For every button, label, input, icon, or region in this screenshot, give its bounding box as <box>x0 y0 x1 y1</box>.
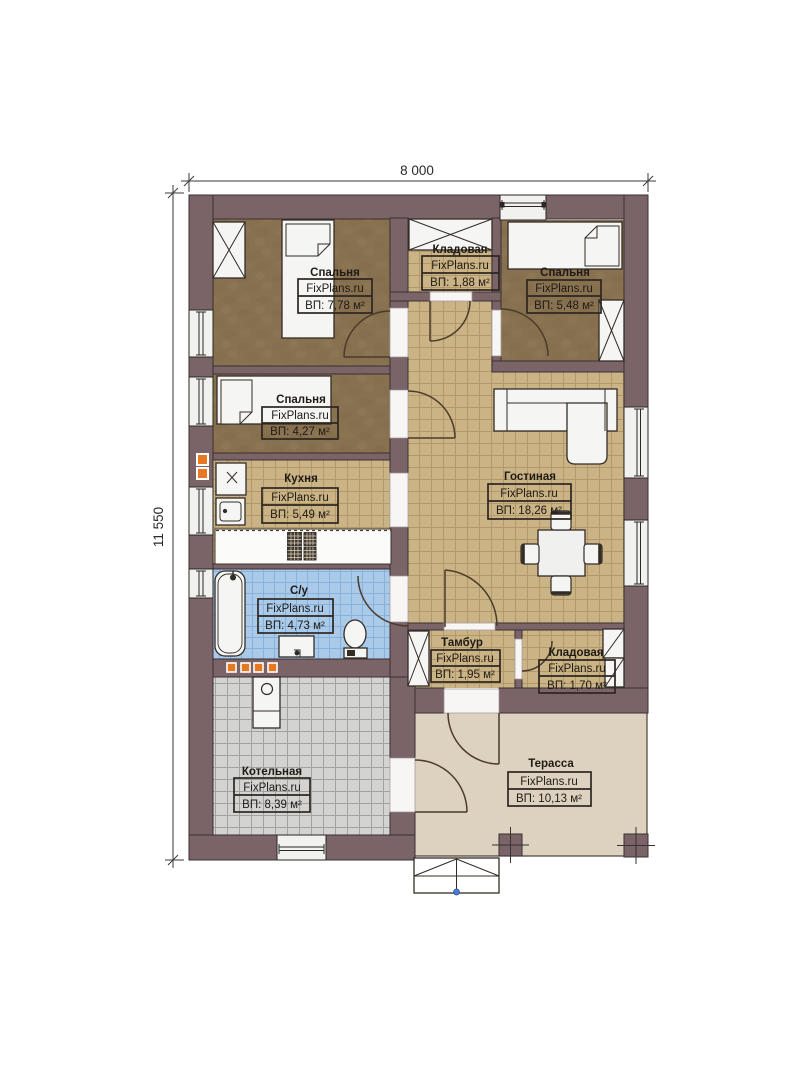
svg-text:FixPlans.ru: FixPlans.ru <box>271 492 329 504</box>
svg-text:Терасса: Терасса <box>528 758 574 770</box>
svg-text:ВП: 10,13 м²: ВП: 10,13 м² <box>516 793 582 805</box>
svg-text:ВП: 18,26 м²: ВП: 18,26 м² <box>496 505 562 517</box>
svg-text:ВП: 4,73 м²: ВП: 4,73 м² <box>265 620 325 632</box>
svg-text:Гостиная: Гостиная <box>504 471 556 483</box>
svg-text:ВП: 1,70 м²: ВП: 1,70 м² <box>547 680 607 692</box>
svg-text:ВП: 4,27 м²: ВП: 4,27 м² <box>270 426 330 438</box>
svg-text:ВП: 5,48 м²: ВП: 5,48 м² <box>534 300 594 312</box>
svg-text:ВП: 8,39 м²: ВП: 8,39 м² <box>242 799 302 811</box>
svg-text:Спальня: Спальня <box>276 394 326 406</box>
svg-text:11 550: 11 550 <box>151 507 166 547</box>
svg-text:С/у: С/у <box>290 585 309 597</box>
svg-text:ВП: 7,78 м²: ВП: 7,78 м² <box>305 300 365 312</box>
svg-text:ВП: 1,95 м²: ВП: 1,95 м² <box>435 669 495 681</box>
svg-text:8 000: 8 000 <box>400 163 434 178</box>
svg-text:Кладовая: Кладовая <box>432 244 487 256</box>
svg-text:FixPlans.ru: FixPlans.ru <box>436 653 494 665</box>
svg-text:Котельная: Котельная <box>242 766 302 778</box>
svg-text:Спальня: Спальня <box>540 267 590 279</box>
svg-text:ВП: 1,88 м²: ВП: 1,88 м² <box>430 277 490 289</box>
svg-text:FixPlans.ru: FixPlans.ru <box>500 488 558 500</box>
svg-text:Тамбур: Тамбур <box>441 637 483 649</box>
svg-text:Кухня: Кухня <box>284 473 318 485</box>
svg-text:ВП: 5,49 м²: ВП: 5,49 м² <box>270 509 330 521</box>
svg-text:FixPlans.ru: FixPlans.ru <box>243 782 301 794</box>
svg-text:FixPlans.ru: FixPlans.ru <box>271 410 329 422</box>
svg-text:FixPlans.ru: FixPlans.ru <box>520 776 578 788</box>
svg-text:FixPlans.ru: FixPlans.ru <box>266 603 324 615</box>
svg-text:FixPlans.ru: FixPlans.ru <box>306 283 364 295</box>
svg-text:Спальня: Спальня <box>310 267 360 279</box>
svg-text:FixPlans.ru: FixPlans.ru <box>535 283 593 295</box>
svg-text:Кладовая: Кладовая <box>548 647 603 659</box>
svg-text:FixPlans.ru: FixPlans.ru <box>548 663 606 675</box>
svg-text:FixPlans.ru: FixPlans.ru <box>431 260 489 272</box>
